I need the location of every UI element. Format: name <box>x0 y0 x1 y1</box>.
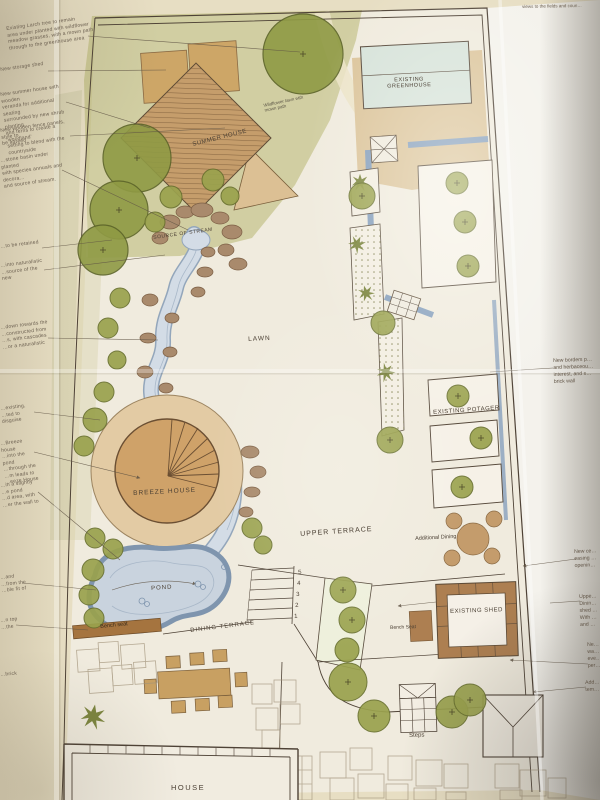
garden-plan-photo: SUMMER HOUSE EXISTING GREENHOUSE SOURCE … <box>0 0 600 800</box>
plan-drawing <box>0 0 600 800</box>
